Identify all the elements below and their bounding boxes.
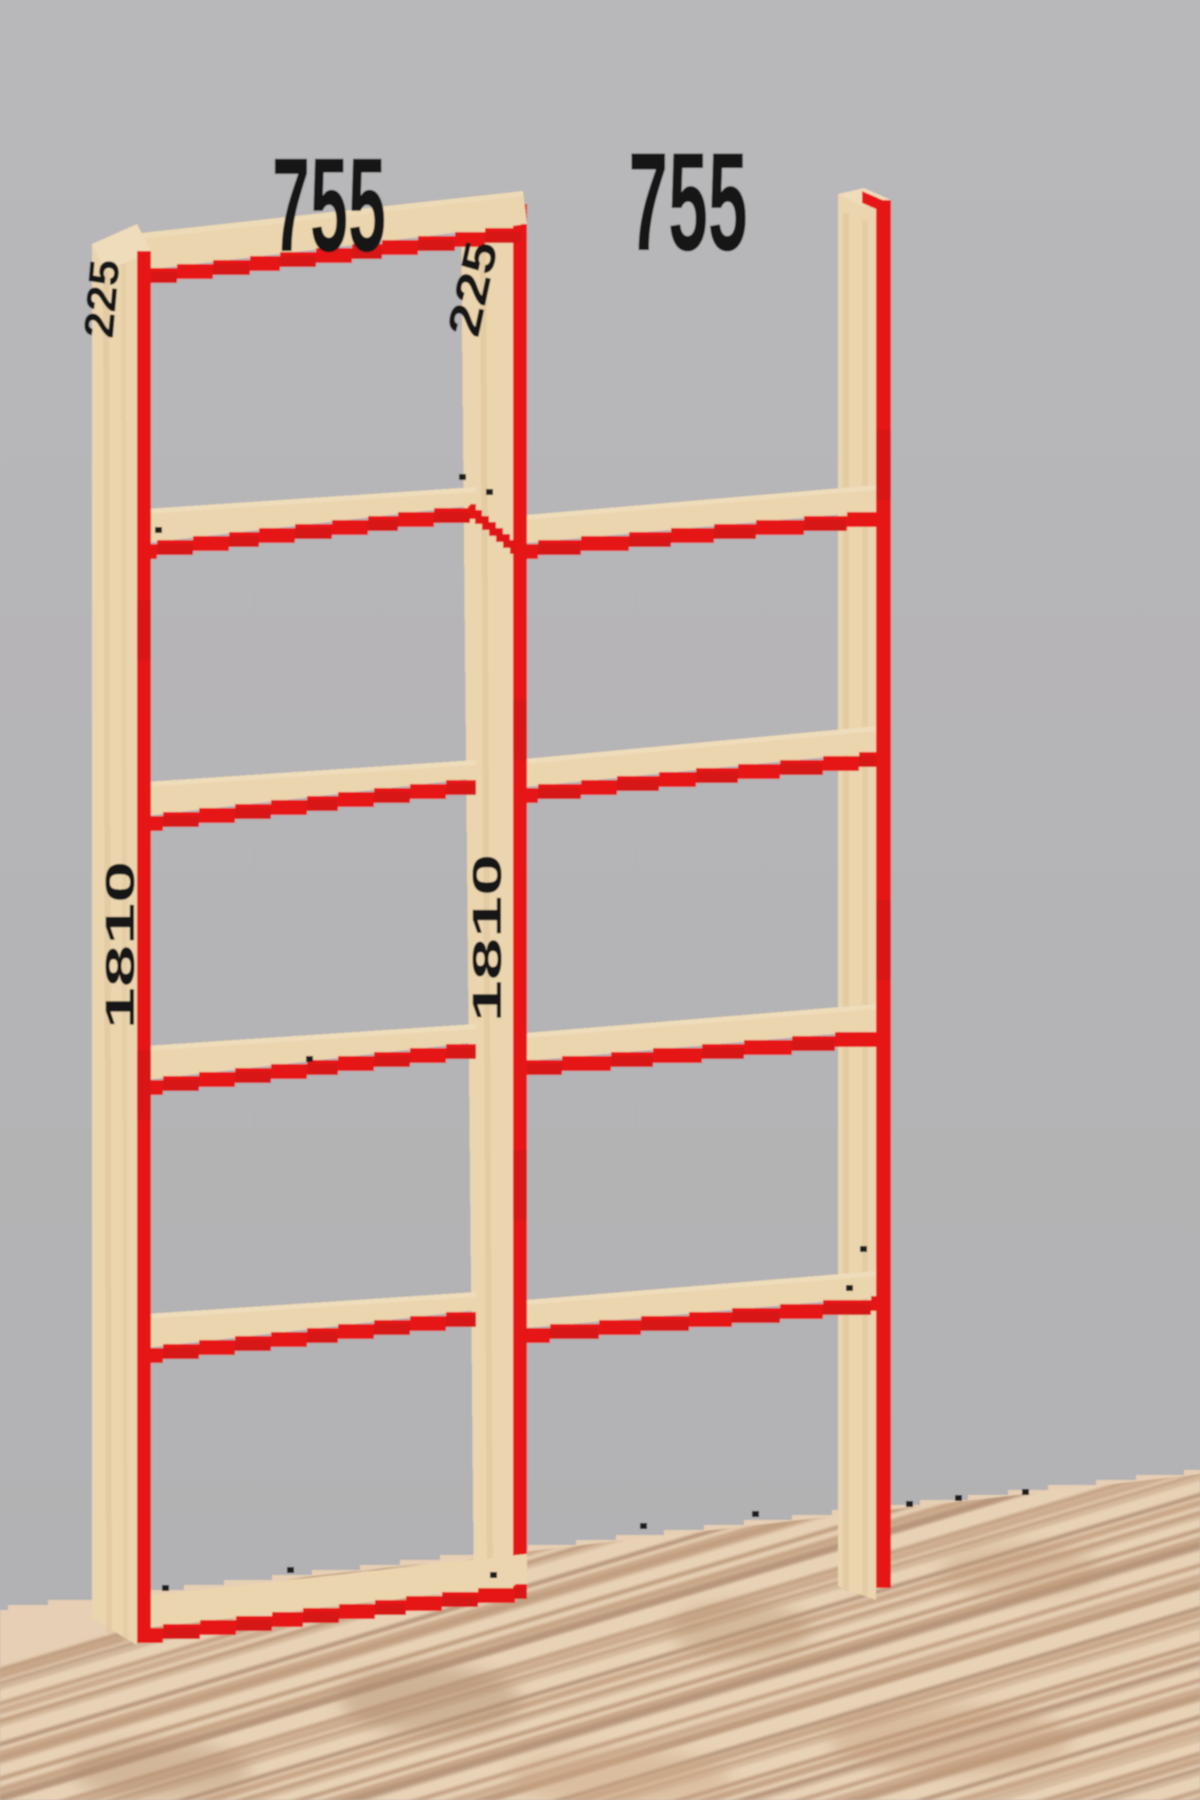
svg-text:755: 755 [628,123,747,280]
svg-text:1810: 1810 [464,854,510,1023]
svg-text:755: 755 [272,130,386,280]
svg-text:1810: 1810 [97,861,143,1030]
svg-text:225: 225 [76,258,129,340]
